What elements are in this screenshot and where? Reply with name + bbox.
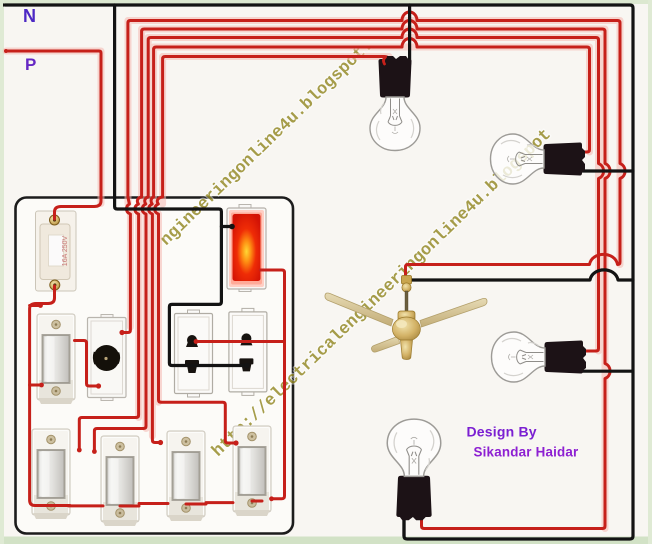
svg-text:P: P [25,55,36,74]
svg-text:N: N [23,6,36,26]
svg-text:Design By: Design By [467,424,537,440]
svg-text:Sikandar Haidar: Sikandar Haidar [474,445,580,460]
